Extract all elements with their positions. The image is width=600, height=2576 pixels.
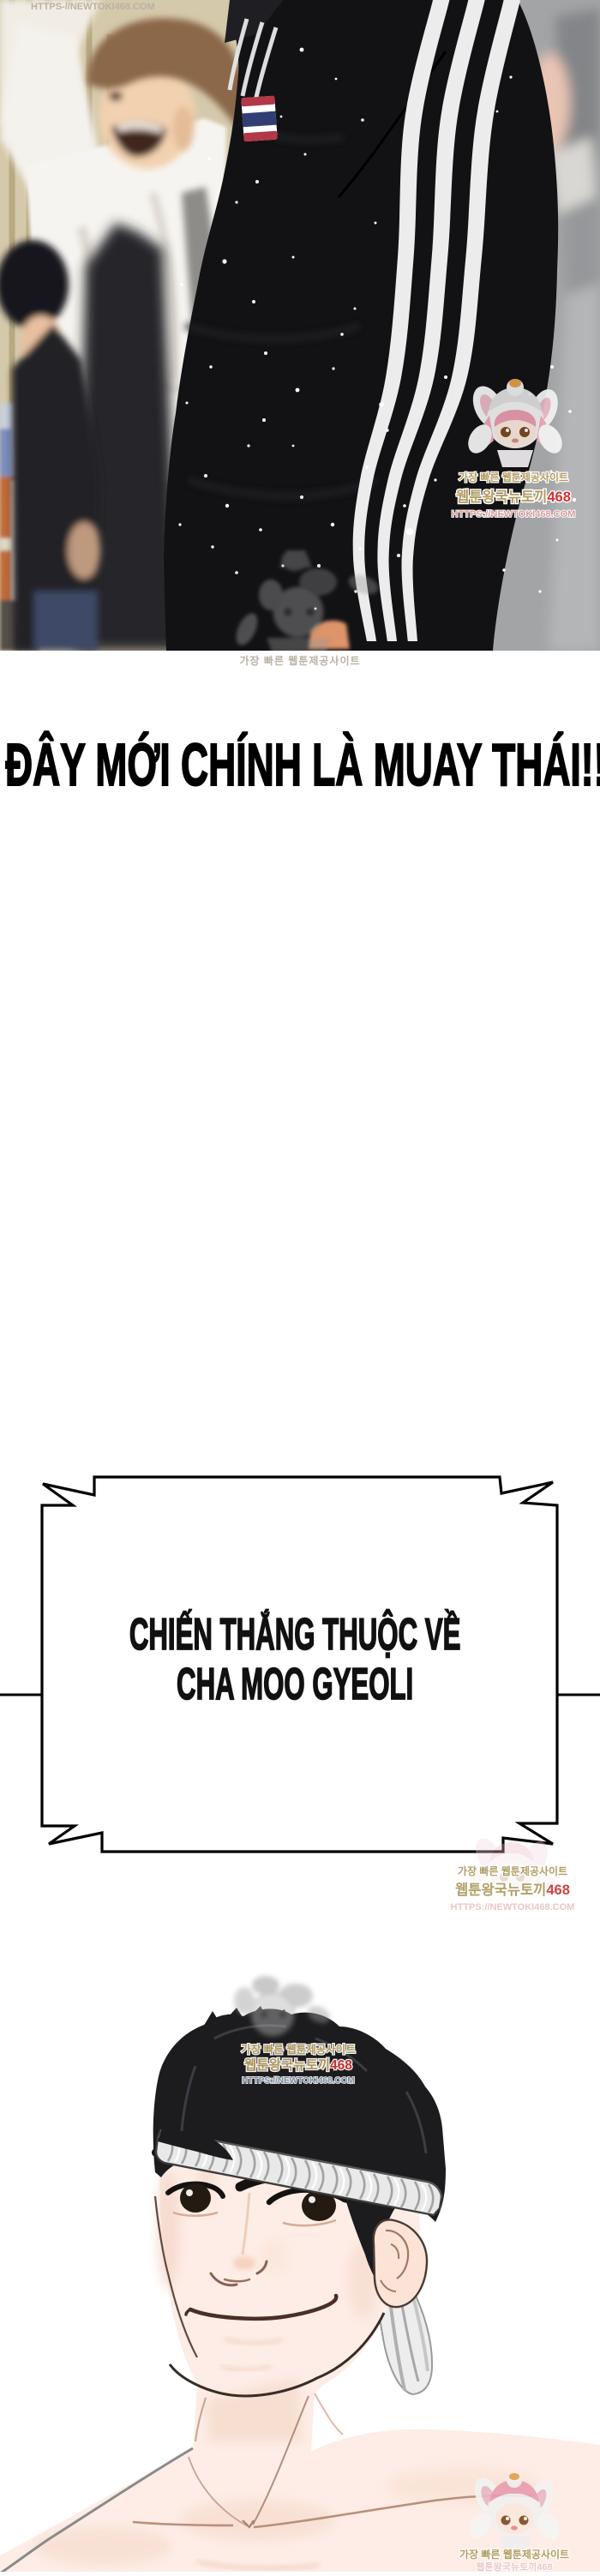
svg-text:가장 빠른 웹툰제공사이트: 가장 빠른 웹툰제공사이트 [459,2548,569,2561]
svg-text:웹툰왕국뉴토끼468: 웹툰왕국뉴토끼468 [476,2561,552,2572]
svg-text:가장 빠른 웹툰제공사이트: 가장 빠른 웹툰제공사이트 [458,1864,567,1877]
svg-text:가장 빠른 웹툰제공사이트: 가장 빠른 웹툰제공사이트 [241,2043,356,2056]
svg-text:웹툰왕국뉴토끼468: 웹툰왕국뉴토끼468 [455,1882,570,1898]
svg-text:HTTPS://NEWTOKI468.COM: HTTPS://NEWTOKI468.COM [451,1902,575,1912]
svg-text:HTTPS-//NEWTOKI468.COM: HTTPS-//NEWTOKI468.COM [31,2,155,12]
svg-text:웹툰왕국뉴토끼468: 웹툰왕국뉴토끼468 [244,2057,352,2073]
svg-text:HTTPS://NEWTOKI468.COM: HTTPS://NEWTOKI468.COM [452,509,576,519]
svg-text:웹툰왕국뉴토끼468: 웹툰왕국뉴토끼468 [456,489,571,505]
svg-text:HTTPS://NEWTOKI468.COM: HTTPS://NEWTOKI468.COM [242,2076,355,2086]
svg-text:가장 빠른 웹툰제공사이트: 가장 빠른 웹툰제공사이트 [459,471,568,483]
